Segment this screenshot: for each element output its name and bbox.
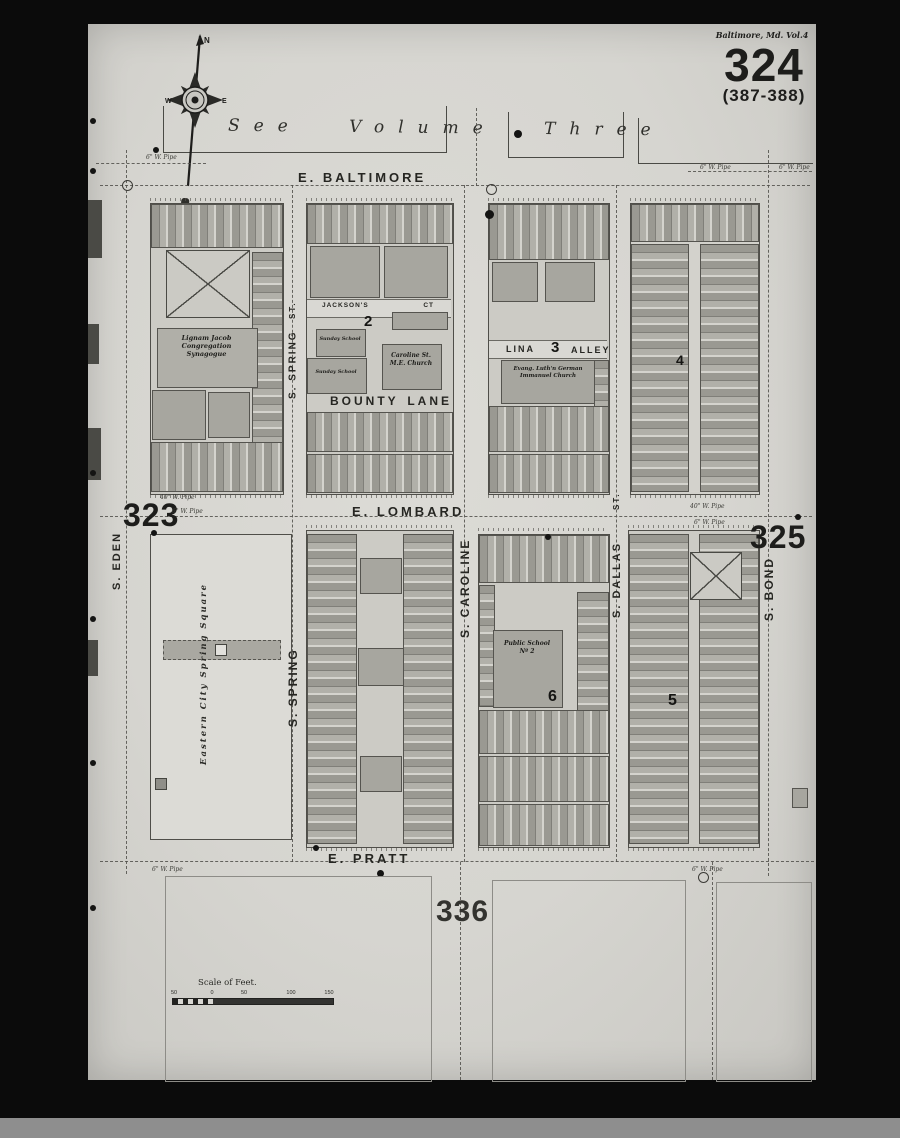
- street-centerline: [476, 108, 477, 186]
- lina-alley-name: LINA: [506, 344, 535, 354]
- house-number-row: [488, 198, 608, 201]
- adjacent-sheet-323: 323: [123, 497, 179, 534]
- sunday-school-building: [316, 329, 366, 357]
- sheet-number: 324: [716, 38, 812, 92]
- street-centerline: [616, 185, 617, 862]
- building-footprint: [358, 648, 404, 686]
- scale-bar: Scale of Feet. 50 0 50 100 150: [168, 978, 346, 1012]
- scale-tick-150: 150: [324, 990, 333, 996]
- street-label-s-bond: S. BOND: [760, 554, 778, 624]
- rowhouse-strip: [489, 454, 609, 493]
- scale-tick-50-left: 50: [171, 990, 177, 996]
- compass-rose-icon: [150, 28, 240, 193]
- immanuel-line1: Evang. Luth'n German: [502, 366, 594, 373]
- caroline-church-label: Caroline St. M.E. Church: [383, 352, 439, 367]
- hydrant-dot: [151, 530, 157, 536]
- bounty-lane-label: BOUNTY LANE: [330, 394, 452, 408]
- house-number-row: [478, 848, 608, 851]
- scan-mark: [90, 905, 96, 911]
- rowhouse-strip: [151, 204, 283, 248]
- rowhouse-strip: [489, 204, 609, 260]
- lane-word: LANE: [407, 394, 452, 408]
- rowhouse-strip: [577, 592, 609, 712]
- block-number-5: 5: [668, 692, 677, 710]
- adjacent-sheet-336: 336: [436, 895, 489, 929]
- building-footprint: [392, 312, 448, 330]
- street-centerline: [464, 185, 465, 862]
- scale-tick-100: 100: [286, 990, 295, 996]
- block-number-4: 4: [676, 352, 684, 368]
- caroline-church-building: [382, 344, 442, 390]
- caroline-church-line1: Caroline St.: [383, 352, 439, 360]
- adjacent-sheet-325: 325: [750, 519, 806, 556]
- scale-bar-rule: [172, 998, 334, 1005]
- scan-mark: [90, 616, 96, 622]
- jacksons-court-name: JACKSON'S: [322, 302, 369, 309]
- house-number-row: [306, 525, 452, 528]
- water-pipe-note: 40" W. Pipe: [160, 494, 195, 501]
- rowhouse-strip: [489, 406, 609, 452]
- hydrant-dot: [795, 514, 801, 520]
- jacksons-court-label: JACKSON'S CT: [322, 302, 434, 309]
- public-school-label: Public School Nº 2: [494, 640, 560, 655]
- building-footprint: [384, 246, 448, 298]
- crossed-building: [690, 552, 742, 600]
- street-label-s-eden: S. EDEN: [108, 528, 126, 594]
- street-centerline: [712, 862, 713, 1080]
- street-label-s-caroline: S. CAROLINE: [456, 540, 474, 636]
- scan-mark: [90, 168, 96, 174]
- rowhouse-strip: [700, 244, 759, 492]
- bounty-word: BOUNTY: [330, 394, 399, 408]
- rowhouse-strip: [307, 412, 453, 452]
- rowhouse-strip: [631, 204, 759, 242]
- water-pipe-note: 6" W. Pipe: [694, 519, 725, 526]
- building-footprint: [360, 756, 402, 792]
- hydrant-dot: [313, 845, 319, 851]
- street-label-e-baltimore: E. BALTIMORE: [298, 170, 426, 185]
- rowhouse-strip: [631, 244, 689, 492]
- rowhouse-strip: [479, 756, 609, 802]
- synagogue-label: Lignam Jacob Congregation Synagogue: [159, 334, 254, 358]
- building-footprint: [208, 392, 250, 438]
- sunday-school-label: Sunday School: [307, 369, 365, 375]
- scale-tick-0: 0: [210, 990, 213, 996]
- street-centerline: [100, 185, 810, 186]
- rowhouse-strip: [479, 710, 609, 754]
- immanuel-line2: Immanuel Church: [502, 373, 594, 380]
- crossed-building: [166, 250, 250, 318]
- scan-mark: [90, 118, 96, 124]
- street-centerline: [688, 171, 812, 172]
- utility-ring-symbol: [486, 184, 497, 195]
- scanned-sanborn-map-page: { "sheet": { "header_small": "Baltimore,…: [0, 0, 900, 1138]
- rowhouse-strip: [307, 534, 357, 844]
- house-number-row: [628, 525, 758, 528]
- building-footprint: [152, 390, 206, 440]
- margin-fragment: [88, 324, 99, 364]
- street-label-e-pratt: E. PRATT: [328, 851, 410, 866]
- street-label-e-lombard: E. LOMBARD: [352, 504, 464, 519]
- synagogue-line2: Congregation: [159, 342, 254, 350]
- park-structure: [155, 778, 167, 790]
- scan-bottom-band: [0, 1118, 900, 1138]
- water-pipe-note: 6" W. Pipe: [172, 508, 203, 515]
- street-label-s-dallas: S. DALLAS: [609, 540, 625, 620]
- street-label-s-dallas-st-suffix: ST.: [609, 490, 624, 512]
- building-footprint: [492, 262, 538, 302]
- street-centerline: [100, 861, 814, 862]
- compass-north-label: N: [204, 36, 210, 45]
- rowhouse-strip: [151, 442, 283, 492]
- street-centerline: [96, 163, 206, 164]
- water-pipe-note: 6" W. Pipe: [700, 164, 731, 171]
- scale-bar-title: Scale of Feet.: [198, 978, 257, 988]
- utility-ring-symbol: [698, 872, 709, 883]
- water-pipe-note: 40" W. Pipe: [690, 503, 725, 510]
- synagogue-line1: Lignam Jacob: [159, 334, 254, 342]
- scan-mark: [90, 470, 96, 476]
- building-footprint: [310, 246, 380, 298]
- lina-alley-suffix: ALLEY: [571, 345, 611, 355]
- street-label-s-spring-upper: S. SPRING: [285, 334, 301, 396]
- jacksons-court-suffix: CT: [423, 302, 434, 309]
- water-pipe-note: 6" W. Pipe: [152, 866, 183, 873]
- public-school-line2: Nº 2: [494, 648, 560, 656]
- street-centerline: [768, 150, 769, 876]
- spring-house: [215, 644, 227, 656]
- block-number-3: 3: [551, 339, 559, 356]
- sunday-school-label: Sunday School: [316, 336, 364, 342]
- street-centerline: [292, 185, 293, 862]
- house-number-row: [150, 198, 282, 201]
- house-number-row: [306, 198, 452, 201]
- rowhouse-strip: [479, 535, 609, 583]
- water-pipe-note: 6" W. Pipe: [692, 866, 723, 873]
- sheet-page-range: (387-388): [710, 86, 818, 106]
- water-pipe-note: 6" W. Pipe: [146, 154, 177, 161]
- park-square: [150, 534, 292, 840]
- building-footprint: [360, 558, 402, 594]
- margin-fragment: [792, 788, 808, 808]
- street-label-s-spring-st-suffix: ST.: [285, 298, 300, 322]
- house-number-row: [306, 495, 452, 498]
- synagogue-line3: Synagogue: [159, 350, 254, 358]
- house-number-row: [488, 495, 608, 498]
- park-name-label: Eastern City Spring Square: [196, 558, 212, 790]
- scan-mark: [90, 760, 96, 766]
- street-label-s-spring-lower: S. SPRING: [284, 648, 302, 728]
- hydrant-dot: [545, 534, 551, 540]
- immanuel-church-label: Evang. Luth'n German Immanuel Church: [502, 366, 594, 380]
- scale-tick-50: 50: [241, 990, 247, 996]
- rowhouse-strip: [629, 534, 689, 844]
- hydrant-dot: [153, 147, 159, 153]
- building-footprint: [545, 262, 595, 302]
- house-number-row: [630, 495, 758, 498]
- compass-east-label: E: [222, 98, 227, 105]
- rowhouse-strip: [479, 804, 609, 846]
- margin-fragment: [88, 200, 102, 258]
- hydrant-dot: [514, 130, 522, 138]
- compass-west-label: W: [165, 98, 172, 105]
- block-number-6: 6: [548, 688, 557, 706]
- faint-block-outline: [492, 880, 686, 1082]
- sunday-school-building: [307, 358, 367, 394]
- public-school-line1: Public School: [494, 640, 560, 648]
- margin-fragment: [88, 640, 98, 676]
- water-pipe-note: 6" W. Pipe: [779, 164, 810, 171]
- faint-block-outline: [716, 882, 812, 1082]
- utility-ring-symbol: [122, 180, 133, 191]
- rowhouse-strip: [307, 454, 453, 493]
- hydrant-dot: [485, 210, 494, 219]
- house-number-row: [478, 528, 608, 531]
- caroline-church-line2: M.E. Church: [383, 360, 439, 368]
- rowhouse-strip: [307, 204, 453, 244]
- rowhouse-strip: [403, 534, 453, 844]
- house-number-row: [630, 198, 758, 201]
- block-number-2: 2: [364, 313, 372, 330]
- house-number-row: [628, 848, 758, 851]
